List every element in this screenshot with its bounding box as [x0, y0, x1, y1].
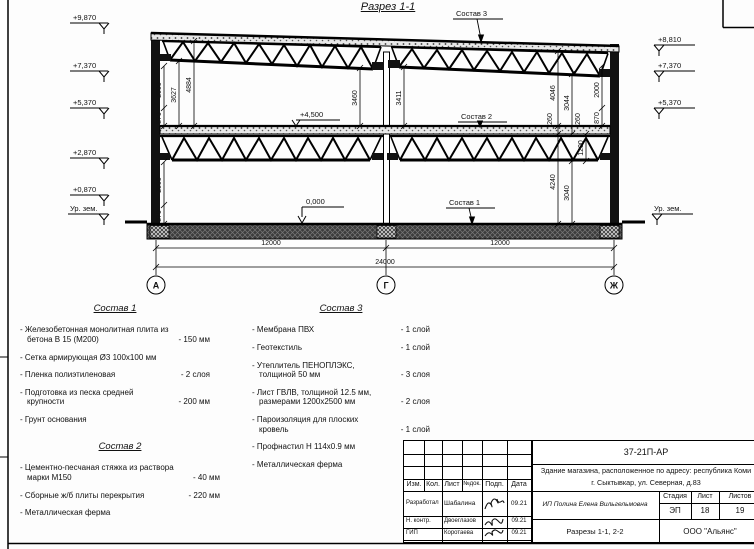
item-value: - 40 мм: [187, 473, 220, 483]
sostav3-ref: Состав 3: [456, 9, 487, 18]
legend-item: - Цементно-песчаная стяжка из раствора м…: [20, 463, 220, 482]
elev-0870: +0,870: [73, 185, 96, 194]
item-value: - 2 слоя: [395, 397, 430, 407]
elev-7370-right: +7,370: [658, 61, 681, 70]
elev-7370-left: +7,370: [73, 61, 96, 70]
elev-2870: +2,870: [73, 148, 96, 157]
item-name: - Лист ГВЛВ, толщиной 12.5 мм, размерами…: [252, 388, 381, 407]
item-value: - 1 слой: [395, 343, 430, 353]
legend-item: - Подготовка из песка средней крупности …: [20, 388, 210, 407]
sostav2-ref: Состав 2: [461, 112, 492, 121]
dim-total: 24000: [375, 259, 395, 266]
dim-span-left: 12000: [261, 240, 281, 247]
item-name: - Сетка армирующая Ø3 100х100 мм: [20, 353, 156, 363]
title-block: Изм. Кол. Лист №док. Подп. Дата Разработ…: [403, 440, 754, 543]
sostav2-legend: Состав 2 - Цементно-песчаная стяжка из р…: [20, 441, 220, 526]
item-value: - 1 слой: [395, 425, 430, 435]
designer-name: ИП Полина Елена Вильгельмовна: [531, 491, 659, 519]
elev-5370-left: +5,370: [73, 98, 96, 107]
row-date: 09.21: [507, 516, 531, 528]
dim-4884: 4884: [186, 77, 193, 93]
legend-item: - Грунт основания: [20, 415, 210, 425]
legend-item: - Железобетонная монолитная плита из бет…: [20, 325, 210, 344]
level-4500: +4,500: [300, 110, 323, 119]
footing-left: [150, 226, 169, 239]
axis-label-g: Г: [383, 281, 388, 291]
col-kol: Кол.: [424, 479, 442, 491]
legend-item: - Утеплитель ПЕНОПЛЭКС, толщиной 50 мм -…: [252, 361, 430, 380]
elev-8810: +8,810: [658, 35, 681, 44]
roof-truss-right: [388, 47, 611, 77]
dim-span-right: 12000: [490, 240, 510, 247]
item-name: - Пленка полиэтиленовая: [20, 370, 115, 380]
item-value: - 220 мм: [183, 491, 220, 501]
signature-squiggles: [482, 489, 507, 542]
sheets-label: Листов: [719, 491, 754, 503]
ground-level-right: Ур. зем.: [654, 204, 682, 213]
dim-3411: 3411: [396, 90, 403, 105]
row-name: Шабалина: [442, 491, 482, 516]
dim-2000-upper-left: 2000: [156, 82, 163, 98]
legend-item: - Пленка полиэтиленовая - 2 слоя: [20, 370, 210, 380]
elev-5370-right: +5,370: [658, 98, 681, 107]
dim-870-lower-left: 870: [156, 210, 163, 222]
object-line1: Здание магазина, расположенное по адресу…: [531, 464, 754, 478]
dim-4046: 4046: [550, 85, 557, 101]
legend-item: - Сетка армирующая Ø3 100х100 мм: [20, 353, 210, 363]
stage-label: Стадия: [659, 491, 691, 503]
item-name: - Утеплитель ПЕНОПЛЭКС, толщиной 50 мм: [252, 361, 381, 380]
dim-3627: 3627: [171, 87, 178, 103]
legend-item: - Металлическая ферма: [20, 508, 220, 518]
sostav3-title: Состав 3: [252, 303, 430, 314]
row-name: Коротаева: [442, 528, 482, 540]
item-name: - Пароизоляция для плоских кровель: [252, 415, 381, 434]
dim-870-upper-left: 870: [156, 112, 163, 124]
row-name: Двоеглазов: [442, 516, 482, 528]
item-name: - Металлическая ферма: [252, 460, 342, 470]
item-name: - Железобетонная монолитная плита из бет…: [20, 325, 169, 344]
col-ndok: №док.: [462, 479, 482, 491]
dim-3040: 3040: [564, 185, 571, 201]
footing-center: [377, 226, 396, 239]
dim-260-b: 260: [575, 113, 582, 125]
dim-3460: 3460: [352, 90, 359, 106]
item-value: - 150 мм: [173, 335, 210, 345]
sheet-value: 18: [691, 503, 719, 519]
item-name: - Мембрана ПВХ: [252, 325, 314, 335]
sostav2-title: Состав 2: [20, 441, 220, 452]
axis-label-j: Ж: [609, 281, 619, 291]
item-value: - 200 мм: [173, 397, 210, 407]
item-value: - 3 слоя: [395, 370, 430, 380]
sheet-name: Разрезы 1-1, 2-2: [531, 519, 659, 544]
item-value: - 1 слой: [395, 325, 430, 335]
item-name: - Профнастил Н 114х0.9 мм: [252, 442, 355, 452]
floor-slab: [160, 126, 610, 134]
legend-item: - Мембрана ПВХ - 1 слой: [252, 325, 430, 335]
elevation-marks-right: [652, 45, 695, 225]
sostav1-title: Состав 1: [20, 303, 210, 314]
row-role: Н. контр.: [404, 516, 442, 528]
col-list: Лист: [442, 479, 462, 491]
center-column: [384, 52, 390, 224]
item-value: - 2 слоя: [175, 370, 210, 380]
item-name: - Цементно-песчаная стяжка из раствора м…: [20, 463, 179, 482]
legend-item: - Сборные ж/б плиты перекрытия - 220 мм: [20, 491, 220, 501]
floor-truss-left: [160, 136, 383, 160]
item-name: - Металлическая ферма: [20, 508, 110, 518]
footing-right: [600, 226, 619, 239]
sostav1-ref: Состав 1: [449, 198, 480, 207]
ground-slab: [125, 222, 645, 239]
floor-truss-right: [387, 136, 610, 160]
sheet-label: Лист: [691, 491, 719, 503]
sheets-value: 19: [719, 503, 754, 519]
level-0000: 0,000: [306, 197, 325, 206]
dim-260-a: 260: [547, 113, 554, 125]
sostav1-legend: Состав 1 - Железобетонная монолитная пли…: [20, 303, 210, 433]
stage-value: ЭП: [659, 503, 691, 519]
row-date: 09.21: [507, 528, 531, 540]
ground-level-left: Ур. зем.: [70, 204, 98, 213]
doc-code: 37-21П-АР: [531, 441, 754, 464]
item-name: - Грунт основания: [20, 415, 87, 425]
row-date: 09.21: [507, 491, 531, 516]
col-data: Дата: [507, 479, 531, 491]
company-name: ООО "Альянс": [659, 519, 754, 544]
row-role: Разработал: [404, 491, 442, 516]
dim-4240: 4240: [550, 174, 557, 190]
legend-item: - Лист ГВЛВ, толщиной 12.5 мм, размерами…: [252, 388, 430, 407]
legend-item: - Пароизоляция для плоских кровель - 1 с…: [252, 415, 430, 434]
item-name: - Сборные ж/б плиты перекрытия: [20, 491, 144, 501]
dim-1200: 1200: [578, 140, 585, 156]
dim-2000-lower-left: 2000: [156, 177, 163, 193]
drawing-sheet: { "drawing": { "title": "Разрез 1-1", "e…: [0, 0, 754, 549]
dim-2000-upper-right: 2000: [594, 82, 601, 98]
item-name: - Геотекстиль: [252, 343, 304, 353]
elevation-marks-left: [68, 23, 109, 225]
axis-label-a: А: [153, 281, 160, 291]
row-role: ГИП: [404, 528, 442, 540]
elev-9870: +9,870: [73, 13, 96, 22]
dim-3044: 3044: [564, 95, 571, 111]
dim-870-upper-right: 870: [594, 112, 601, 124]
legend-item: - Геотекстиль - 1 слой: [252, 343, 430, 353]
item-name: - Подготовка из песка средней крупности: [20, 388, 169, 407]
col-izm: Изм.: [404, 479, 424, 491]
object-line2: г. Сыктывкар, ул. Северная, д.83: [531, 477, 754, 490]
